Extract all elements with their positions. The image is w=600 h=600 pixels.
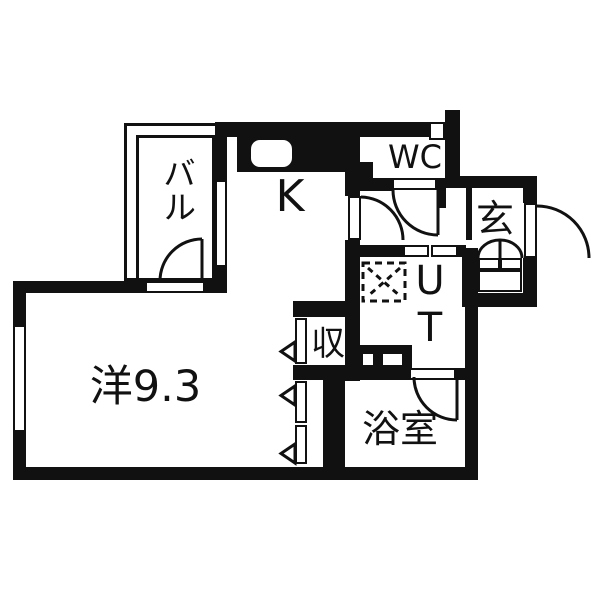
washing-machine-cross bbox=[368, 268, 400, 296]
folding-door-marker bbox=[281, 386, 295, 405]
folding-door-marker bbox=[281, 444, 295, 463]
door-symbols-layer bbox=[0, 0, 600, 600]
storage-label: 収 bbox=[309, 325, 347, 363]
entrance-door-arc bbox=[537, 206, 589, 258]
main-room-label: 洋9.3 bbox=[83, 361, 208, 413]
balcony-door-arc bbox=[160, 239, 202, 281]
shoe-cabinet-door-arc bbox=[478, 240, 500, 258]
hall-door-arc bbox=[361, 197, 403, 240]
kitchen-label: K bbox=[266, 172, 314, 222]
entrance-label: 玄 bbox=[474, 198, 516, 240]
wc-door-arc bbox=[393, 190, 438, 235]
wc-label: WC bbox=[378, 139, 452, 175]
utility-label: UT bbox=[406, 260, 454, 350]
shoe-cabinet-door-arc bbox=[500, 240, 522, 258]
bathroom-label: 浴室 bbox=[356, 408, 444, 450]
folding-door-marker bbox=[281, 342, 295, 361]
floor-plan: バル K WC 玄 UT 収 浴室 洋9.3 bbox=[0, 0, 600, 600]
balcony-label: バル bbox=[156, 148, 198, 232]
